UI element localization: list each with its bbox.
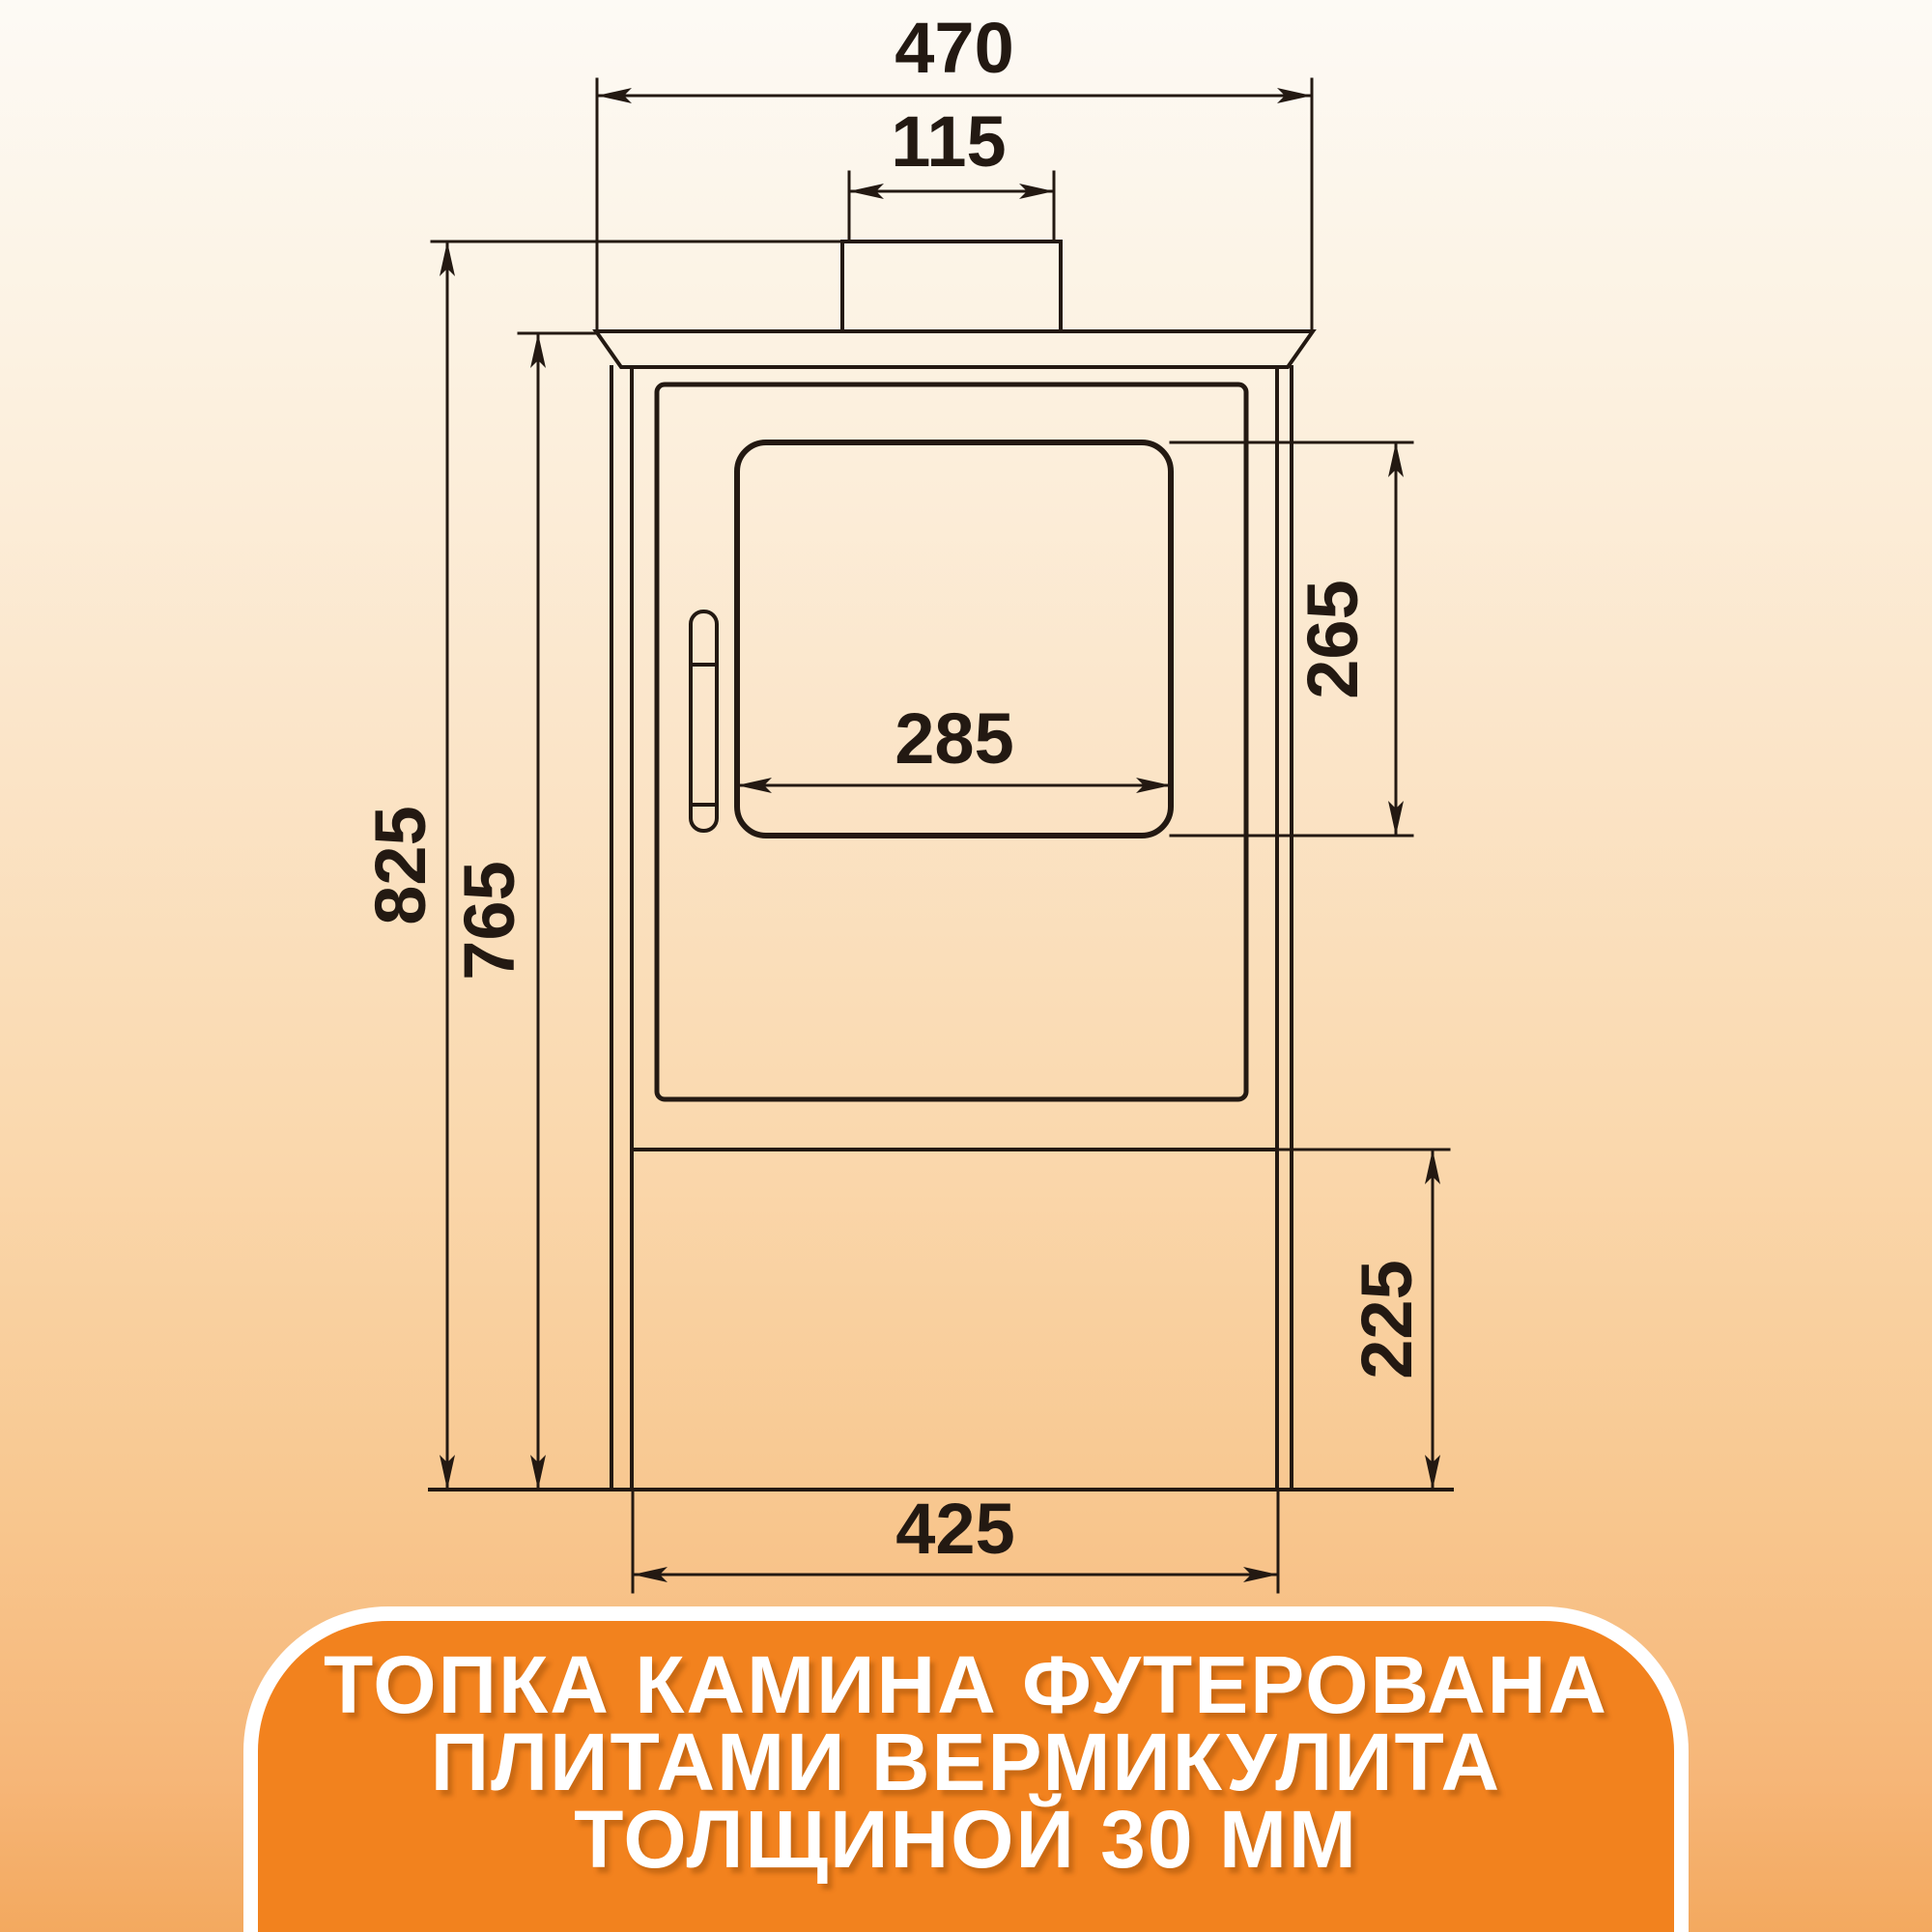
dim-label-225: 225 <box>1347 1260 1427 1378</box>
dim-label-265: 265 <box>1293 580 1373 698</box>
dim-label-285: 285 <box>895 698 1013 779</box>
dim-label-115: 115 <box>891 101 1006 182</box>
dim-label-765: 765 <box>449 861 529 980</box>
dim-label-825: 825 <box>360 806 440 924</box>
banner-text-line-3: ТОЛЩИНОЙ 30 ММ <box>574 1801 1358 1878</box>
banner-text-line-1: ТОПКА КАМИНА ФУТЕРОВАНА <box>324 1646 1608 1723</box>
top-plate <box>596 331 1313 367</box>
dim-label-470: 470 <box>895 8 1013 88</box>
banner-text-line-2: ПЛИТАМИ ВЕРМИКУЛИТА <box>431 1723 1501 1801</box>
stove-body-walls <box>430 367 1452 1490</box>
page: 470 115 285 425 825 765 265 225 ТОПКА КА… <box>0 0 1932 1932</box>
door-handle <box>691 611 717 831</box>
info-banner: ТОПКА КАМИНА ФУТЕРОВАНА ПЛИТАМИ ВЕРМИКУЛ… <box>243 1606 1689 1932</box>
dim-label-425: 425 <box>895 1489 1014 1569</box>
flue-pipe <box>842 241 1061 331</box>
